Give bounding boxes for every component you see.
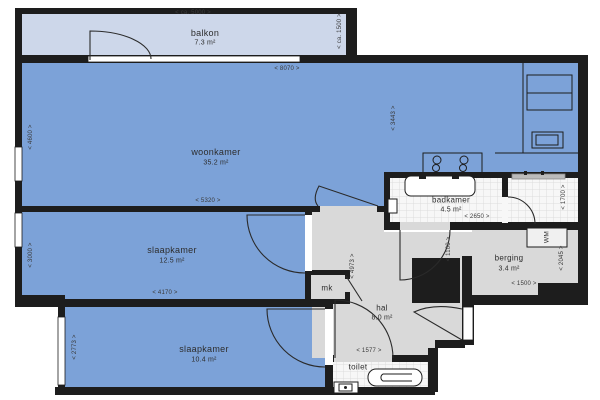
livingroom-window: [15, 147, 22, 181]
room-label-slaapkamer2: slaapkamer: [179, 344, 229, 354]
hall-berging-passage: [462, 232, 472, 256]
bathtub: [405, 176, 475, 196]
dim-berging-right: < 2045 >: [559, 245, 565, 270]
dim-slaapkamer2-left: < 2773 >: [72, 334, 78, 359]
dim-woonkamer-right: < 3443 >: [391, 105, 397, 130]
floorplan-drawing: [0, 0, 600, 400]
bathtub-tap-2: [452, 174, 459, 179]
dim-hal-left: < 4973 >: [350, 253, 356, 278]
dim-balkon-depth: < ca. 1500 >: [337, 13, 343, 49]
bedroom1-floor: [22, 212, 305, 299]
balcony-floor: [22, 14, 346, 58]
dim-slaapkamer1-left: < 3000 >: [28, 242, 34, 267]
room-label-badkamer: badkamer: [432, 196, 470, 205]
area-label-slaapkamer2: 10.4 m²: [191, 357, 216, 364]
area-label-berging: 3.4 m²: [498, 266, 519, 273]
label-washing-machine: WM: [544, 231, 551, 243]
dim-woonkamer-left: < 4600 >: [28, 124, 34, 149]
room-label-woonkamer: woonkamer: [191, 147, 240, 157]
bathtub-tap: [419, 174, 426, 179]
floor-plan: balkon 7.3 m² < ca. 5000 > < ca. 1500 > …: [0, 0, 600, 400]
room-label-mk: mk: [321, 284, 332, 293]
dim-slaapkamer1-bottom: < 4170 >: [152, 290, 177, 296]
dim-woonkamer-top: < 8070 >: [274, 66, 299, 72]
washbasin: [388, 199, 397, 213]
area-label-balkon: 7.3 m²: [194, 40, 215, 47]
dim-balkon-width: < ca. 5000 >: [175, 10, 211, 16]
entrance-door: [463, 307, 473, 340]
bedroom1-window: [15, 213, 22, 247]
radiator: [512, 174, 565, 179]
bedroom2-window: [58, 317, 65, 385]
dim-hal-bottom: < 1577 >: [356, 348, 381, 354]
room-label-slaapkamer1: slaapkamer: [147, 245, 197, 255]
livingroom-floor-2: [22, 63, 390, 206]
balcony-window-front: [88, 56, 300, 62]
dim-woonkamer-bottom: < 5320 >: [195, 198, 220, 204]
dim-badkamer-bottom: < 2650 >: [464, 214, 489, 220]
room-label-toilet: toilet: [349, 363, 368, 372]
area-label-badkamer: 4.5 m²: [440, 207, 461, 214]
toilet-bowl: [368, 369, 422, 386]
room-label-hal: hal: [376, 304, 388, 313]
room-label-balkon: balkon: [191, 28, 219, 38]
area-label-slaapkamer1: 12.5 m²: [159, 258, 184, 265]
dim-hal-passage: < 1100 >: [446, 237, 452, 262]
shower-floor: [508, 178, 578, 224]
dim-berging-bottom: < 1500 >: [511, 281, 536, 287]
floors: [22, 14, 578, 387]
room-label-berging: berging: [495, 254, 524, 263]
dim-douche-right: < 1700 >: [561, 184, 567, 209]
area-label-woonkamer: 35.2 m²: [203, 160, 228, 167]
area-label-hal: 8.0 m²: [371, 315, 392, 322]
